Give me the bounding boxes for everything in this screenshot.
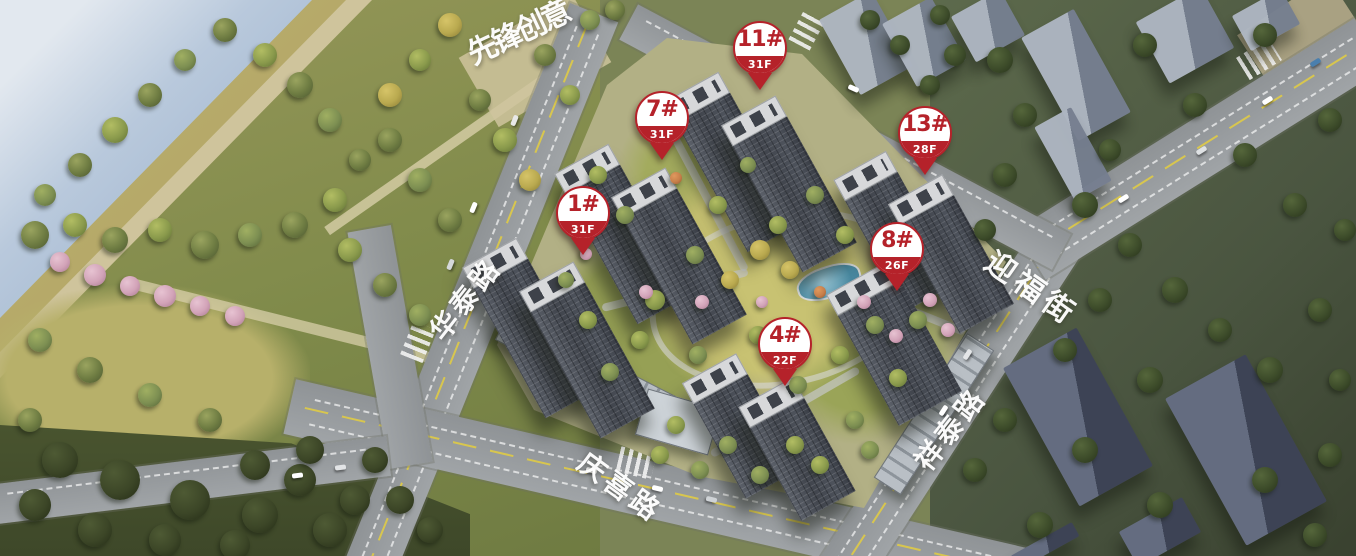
tree — [42, 442, 78, 478]
building-marker-8[interactable]: 8# 26F — [870, 222, 924, 291]
tree — [963, 458, 987, 482]
tree — [691, 461, 709, 479]
tree — [138, 383, 162, 407]
tree — [631, 331, 649, 349]
tree — [857, 295, 871, 309]
tree — [930, 5, 950, 25]
tree — [493, 128, 517, 152]
tree — [242, 497, 278, 533]
tree — [198, 408, 222, 432]
tree — [1013, 103, 1037, 127]
tree — [709, 196, 727, 214]
tree — [721, 271, 739, 289]
tree — [1027, 512, 1053, 538]
tree — [338, 238, 362, 262]
tree — [806, 186, 824, 204]
tree — [1233, 143, 1257, 167]
tree — [1053, 338, 1077, 362]
tree — [154, 285, 176, 307]
tree — [469, 89, 491, 111]
tree — [670, 172, 682, 184]
tree — [149, 524, 181, 556]
building-number: 4# — [760, 319, 810, 352]
tree — [318, 108, 342, 132]
building-floors: 28F — [900, 141, 950, 158]
pin-circle: 7# 31F — [635, 91, 689, 145]
tree — [750, 240, 770, 260]
tree — [1118, 233, 1142, 257]
tree — [1147, 492, 1173, 518]
building-marker-1[interactable]: 1# 31F — [556, 186, 610, 255]
building-number: 13# — [900, 108, 950, 141]
tree — [284, 464, 316, 496]
tree — [846, 411, 864, 429]
tree — [1133, 33, 1157, 57]
tree — [1099, 139, 1121, 161]
tree — [1183, 93, 1207, 117]
tree — [1072, 437, 1098, 463]
tree — [100, 460, 140, 500]
tree — [287, 72, 313, 98]
pin-tail-icon — [773, 369, 797, 386]
tree — [340, 485, 370, 515]
tree — [378, 128, 402, 152]
tree — [34, 184, 56, 206]
tree — [923, 293, 937, 307]
tree — [63, 213, 87, 237]
tree — [889, 369, 907, 387]
tree — [1334, 219, 1356, 241]
tree — [601, 363, 619, 381]
tree — [148, 218, 172, 242]
aerial-masterplan-scene: 先锋创意 华泰路 迎福街 祥泰路 庆喜路 1# 31F 4# 22F 7# 31… — [0, 0, 1356, 556]
building-marker-11[interactable]: 11# 31F — [733, 21, 787, 90]
tree — [756, 296, 768, 308]
tree — [860, 10, 880, 30]
tree — [417, 517, 443, 543]
tree — [719, 436, 737, 454]
tree — [68, 153, 92, 177]
tree — [1088, 288, 1112, 312]
tree — [909, 311, 927, 329]
building-number: 1# — [558, 188, 608, 221]
tree — [639, 285, 653, 299]
pin-tail-icon — [650, 143, 674, 160]
tree — [253, 43, 277, 67]
tree — [191, 231, 219, 259]
tree — [580, 10, 600, 30]
tree — [362, 447, 388, 473]
tree — [102, 117, 128, 143]
tree — [1162, 277, 1188, 303]
tree — [296, 436, 324, 464]
tree — [138, 83, 162, 107]
tree — [50, 252, 70, 272]
tree — [28, 328, 52, 352]
tree — [120, 276, 140, 296]
tree — [282, 212, 308, 238]
tree — [667, 416, 685, 434]
pin-tail-icon — [748, 73, 772, 90]
tree — [1257, 357, 1283, 383]
tree — [1329, 369, 1351, 391]
tree — [1137, 367, 1163, 393]
building-floors: 22F — [760, 352, 810, 369]
tree — [1318, 108, 1342, 132]
building-floors: 31F — [735, 56, 785, 73]
building-floors: 26F — [872, 257, 922, 274]
tree — [238, 223, 262, 247]
tree — [84, 264, 106, 286]
tree — [831, 346, 849, 364]
tree — [781, 261, 799, 279]
tree — [974, 219, 996, 241]
tree — [519, 169, 541, 191]
tree — [890, 35, 910, 55]
tree — [409, 49, 431, 71]
tree — [920, 75, 940, 95]
tree — [225, 306, 245, 326]
tree — [78, 513, 112, 547]
pin-circle: 4# 22F — [758, 317, 812, 371]
tree — [349, 149, 371, 171]
tree — [1072, 192, 1098, 218]
building-number: 7# — [637, 93, 687, 126]
tree — [19, 489, 51, 521]
tree — [1252, 467, 1278, 493]
tree — [18, 408, 42, 432]
tree — [1253, 23, 1277, 47]
tree — [811, 456, 829, 474]
tree — [769, 216, 787, 234]
pin-circle: 11# 31F — [733, 21, 787, 75]
tree — [941, 323, 955, 337]
building-number: 11# — [735, 23, 785, 56]
tree — [558, 272, 574, 288]
tree — [944, 44, 966, 66]
tree — [993, 408, 1017, 432]
tree — [378, 83, 402, 107]
building-marker-4[interactable]: 4# 22F — [758, 317, 812, 386]
pin-tail-icon — [571, 238, 595, 255]
tree — [740, 157, 756, 173]
tree — [861, 441, 879, 459]
tree — [190, 296, 210, 316]
tree — [1303, 523, 1327, 547]
tree — [313, 513, 347, 547]
tree — [1283, 193, 1307, 217]
pin-tail-icon — [913, 158, 937, 175]
tree — [987, 47, 1013, 73]
crosswalk — [788, 9, 825, 50]
tree — [814, 286, 826, 298]
tree — [77, 357, 103, 383]
tree — [560, 85, 580, 105]
tree — [213, 18, 237, 42]
tree — [1318, 443, 1342, 467]
tree — [21, 221, 49, 249]
tree — [174, 49, 196, 71]
tree — [751, 466, 769, 484]
tree — [836, 226, 854, 244]
tree — [220, 530, 250, 556]
pin-circle: 8# 26F — [870, 222, 924, 276]
building-marker-7[interactable]: 7# 31F — [635, 91, 689, 160]
tree — [786, 436, 804, 454]
building-floors: 31F — [637, 126, 687, 143]
tree — [889, 329, 903, 343]
tree — [866, 316, 884, 334]
tree — [695, 295, 709, 309]
building-marker-13[interactable]: 13# 28F — [898, 106, 952, 175]
building-number: 8# — [872, 224, 922, 257]
tree — [605, 0, 625, 20]
tree — [686, 246, 704, 264]
tree — [240, 450, 270, 480]
tree — [438, 208, 462, 232]
tree — [1208, 318, 1232, 342]
tree — [1308, 298, 1332, 322]
tree — [579, 311, 597, 329]
tree — [102, 227, 128, 253]
tree — [689, 346, 707, 364]
tree — [589, 166, 607, 184]
tree — [651, 446, 669, 464]
pin-circle: 13# 28F — [898, 106, 952, 160]
tree — [170, 480, 210, 520]
tree — [993, 163, 1017, 187]
tree — [386, 486, 414, 514]
tree — [408, 168, 432, 192]
tree — [534, 44, 556, 66]
tree — [373, 273, 397, 297]
tree — [323, 188, 347, 212]
pin-circle: 1# 31F — [556, 186, 610, 240]
tree — [616, 206, 634, 224]
pin-tail-icon — [885, 274, 909, 291]
building-floors: 31F — [558, 221, 608, 238]
